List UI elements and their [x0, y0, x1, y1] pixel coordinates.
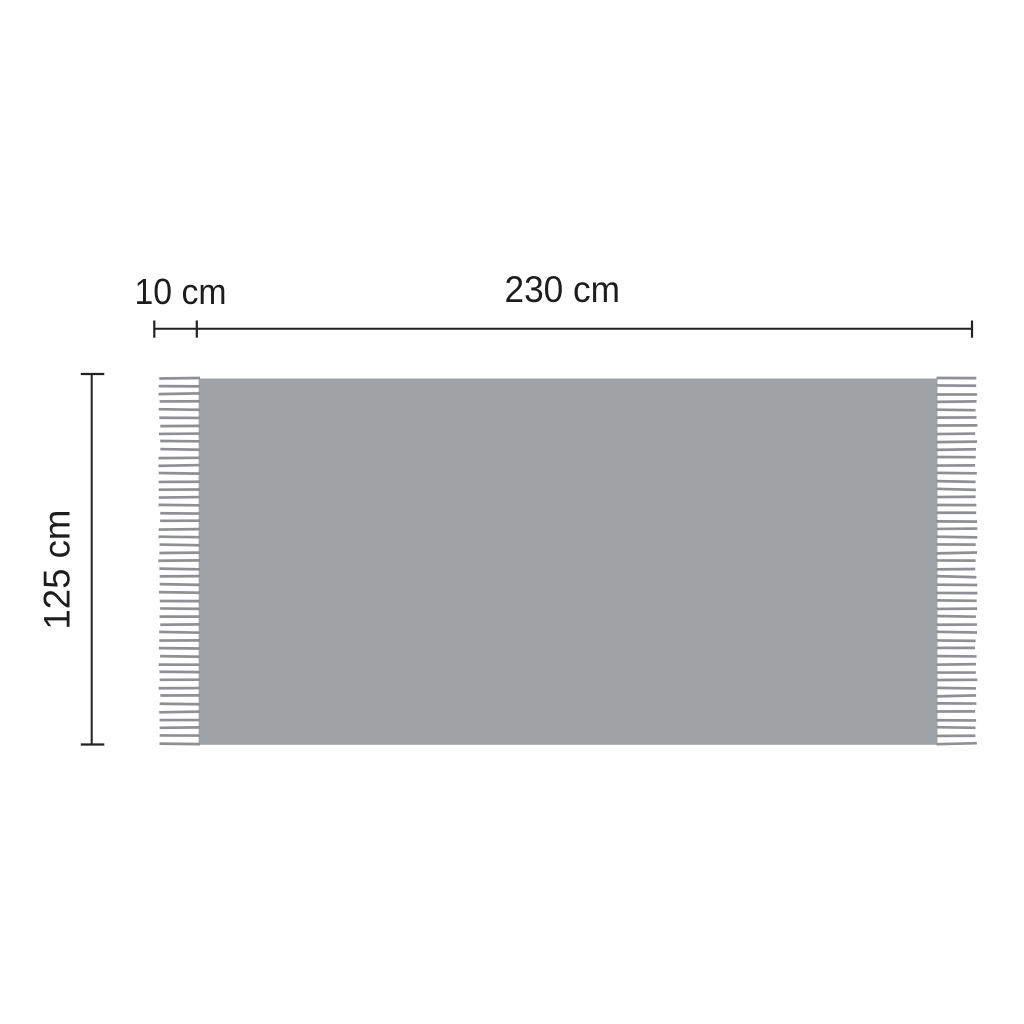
svg-text:230 cm: 230 cm — [505, 269, 621, 310]
svg-text:125 cm: 125 cm — [36, 510, 77, 630]
svg-text:10 cm: 10 cm — [135, 271, 227, 312]
